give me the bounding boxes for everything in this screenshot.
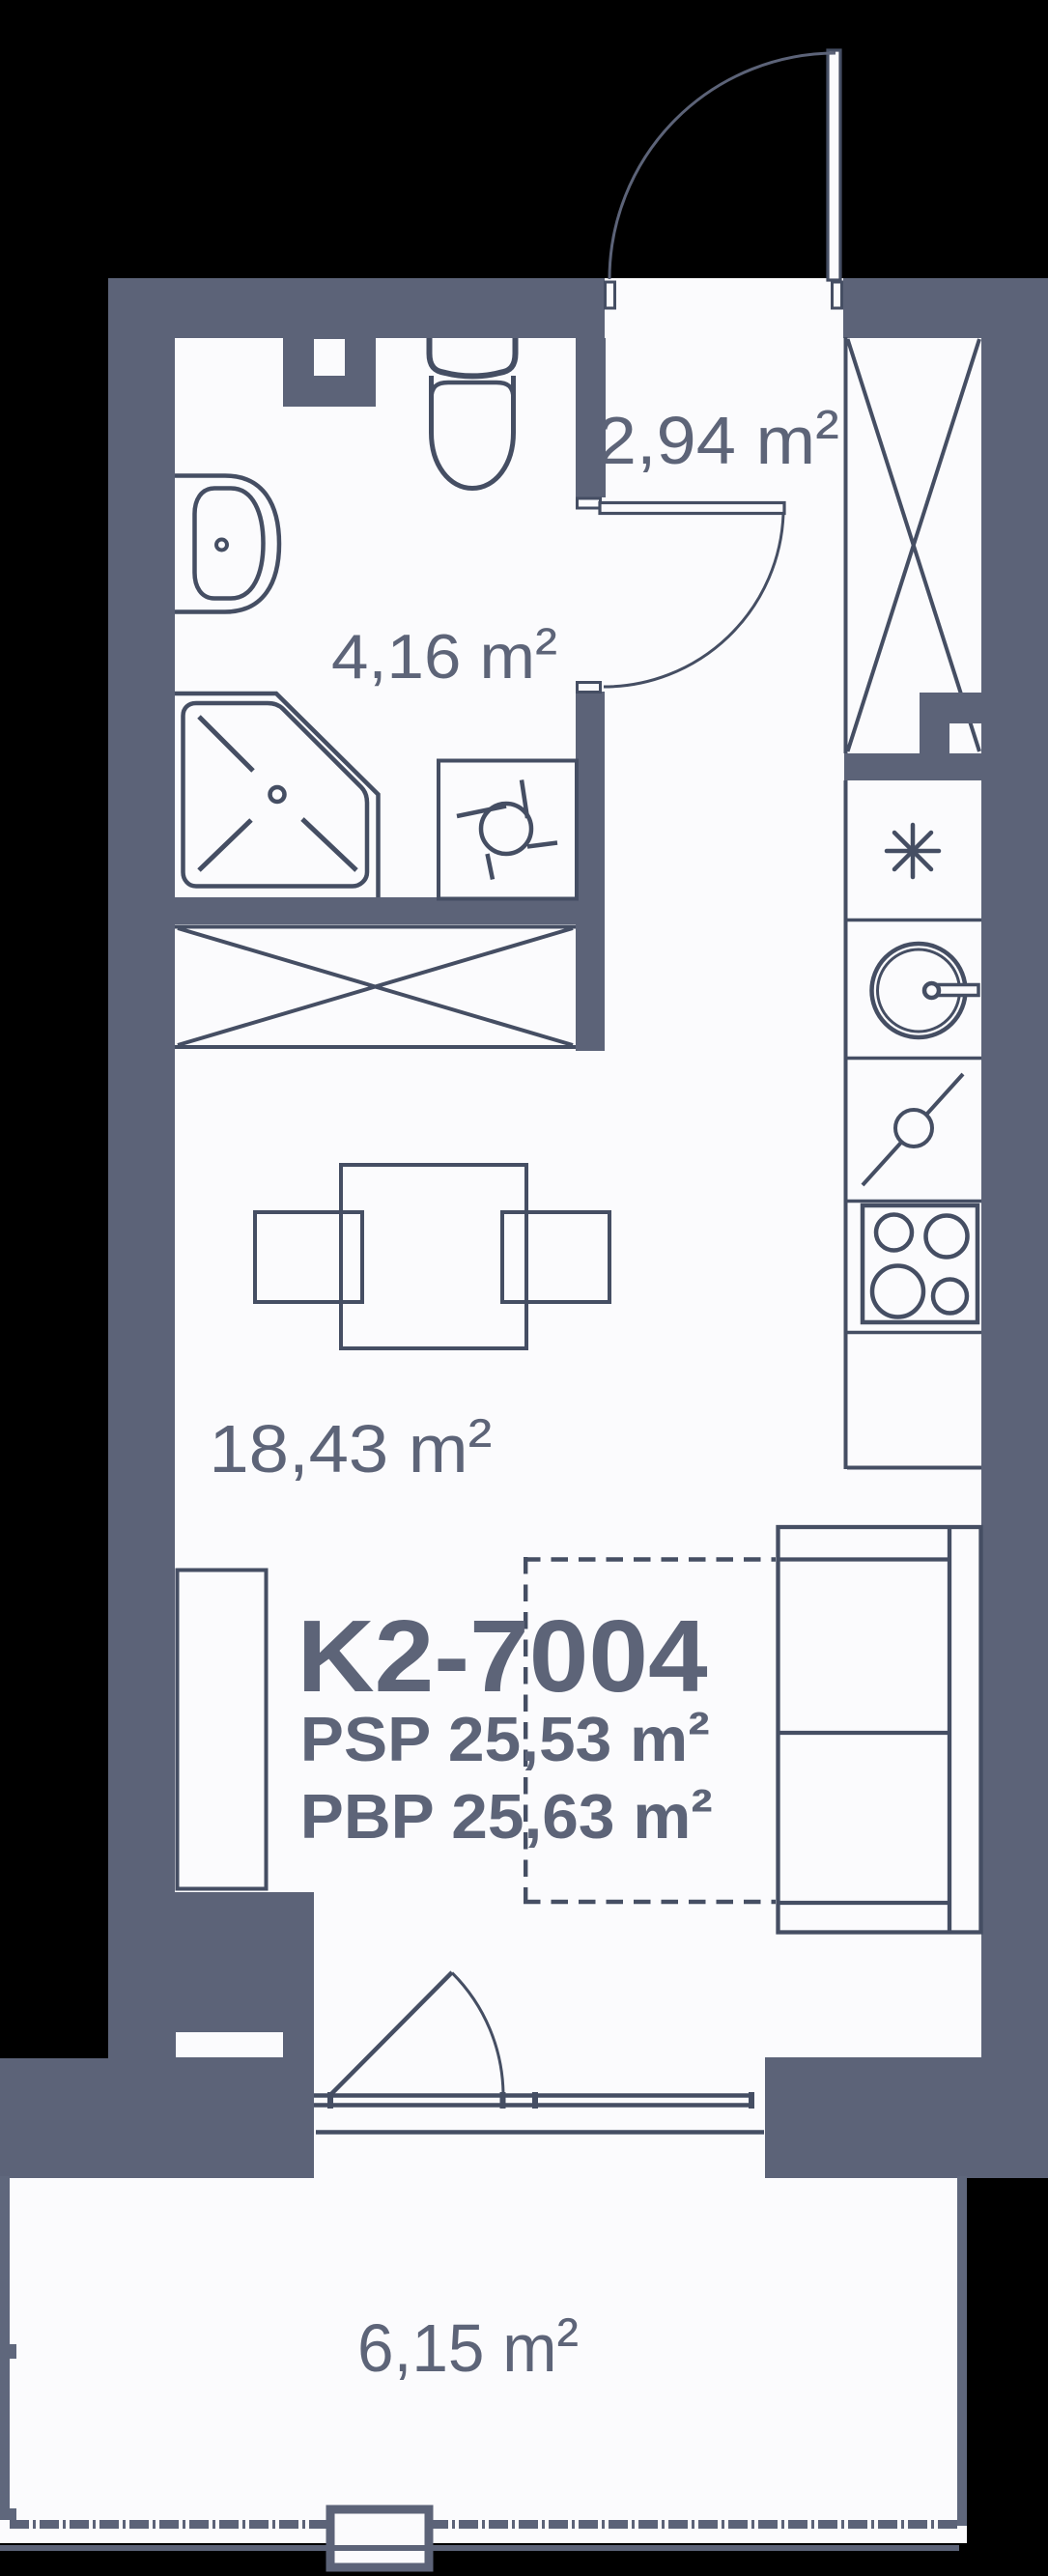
svg-text:PBP 25,63 m²: PBP 25,63 m² [300, 1777, 713, 1853]
svg-text:18,43 m²: 18,43 m² [209, 1404, 492, 1486]
svg-text:PSP 25,53 m²: PSP 25,53 m² [300, 1700, 710, 1775]
svg-text:2,94 m²: 2,94 m² [597, 397, 839, 479]
svg-text:6,15 m²: 6,15 m² [357, 2304, 579, 2386]
svg-text:4,16 m²: 4,16 m² [331, 615, 557, 693]
svg-text:K2-7004: K2-7004 [297, 1599, 708, 1713]
